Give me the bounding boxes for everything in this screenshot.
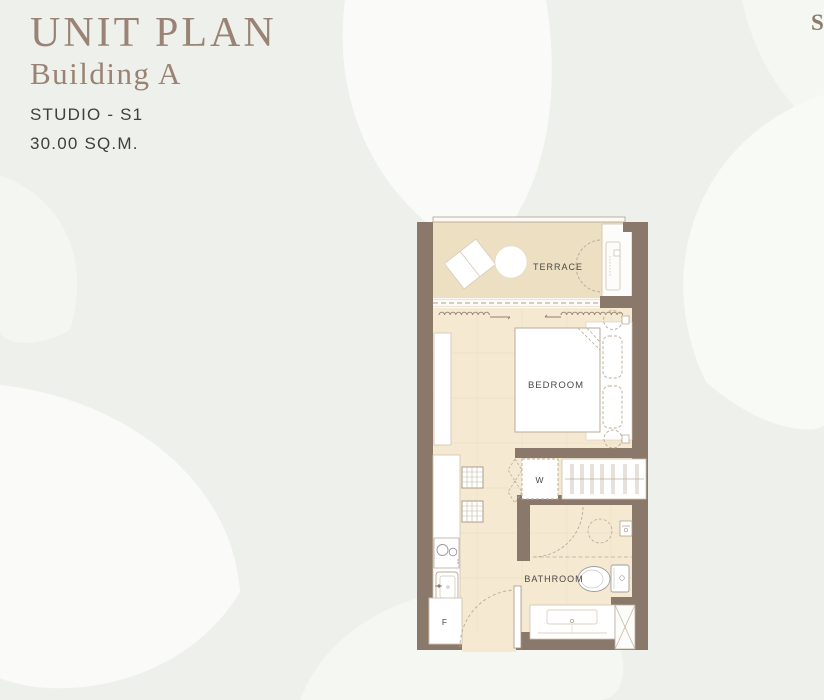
- washer-label: W: [535, 475, 544, 485]
- bathroom-label: BATHROOM: [524, 574, 583, 584]
- laundry-area: W: [508, 459, 646, 503]
- stool: [462, 501, 483, 522]
- bedroom-label: BEDROOM: [528, 380, 584, 391]
- shower-head: [620, 521, 632, 536]
- corner-logo-letter: S: [811, 10, 824, 36]
- vanity-sink: [530, 605, 615, 639]
- terrace-table: [495, 246, 527, 278]
- page-title: UNIT PLAN: [30, 10, 277, 56]
- console: [434, 333, 451, 445]
- unit-plan-page: UNIT PLAN Building A STUDIO - S1 30.00 S…: [0, 0, 824, 700]
- wall-fixture: [622, 435, 629, 443]
- title-block: UNIT PLAN Building A STUDIO - S1 30.00 S…: [30, 10, 277, 154]
- ac-ledge: [602, 224, 632, 300]
- stool: [462, 467, 483, 488]
- terrace-railing: [433, 217, 625, 222]
- unit-area-label: 30.00 SQ.M.: [30, 134, 277, 154]
- bathroom-west-wall: [517, 495, 530, 561]
- kitchen-sink: [435, 572, 458, 602]
- door-leaf: [514, 586, 521, 648]
- toilet: [578, 565, 629, 592]
- fridge-label: F: [442, 617, 448, 627]
- right-wall: [632, 222, 648, 650]
- floor-plan: TERRACE BEDROOM: [415, 216, 648, 652]
- terrace-corner-wall: [600, 296, 648, 308]
- pillow: [603, 386, 622, 428]
- wall-fixture: [622, 316, 629, 324]
- fridge: F: [429, 598, 462, 644]
- pillow: [603, 336, 622, 378]
- unit-type-label: STUDIO - S1: [30, 105, 277, 125]
- floor-plan-container: TERRACE BEDROOM: [415, 216, 648, 652]
- entrance-opening: [462, 632, 516, 652]
- left-wall: [417, 222, 433, 650]
- terrace-label: TERRACE: [533, 262, 583, 272]
- washer: W: [522, 459, 558, 499]
- stove: [434, 538, 459, 568]
- wardrobe: [562, 459, 646, 499]
- building-name: Building A: [30, 56, 277, 92]
- shaft: [615, 605, 635, 649]
- sliding-door: [433, 298, 600, 308]
- top-right-column: [623, 222, 648, 232]
- bedroom-divider-wall: [515, 448, 632, 458]
